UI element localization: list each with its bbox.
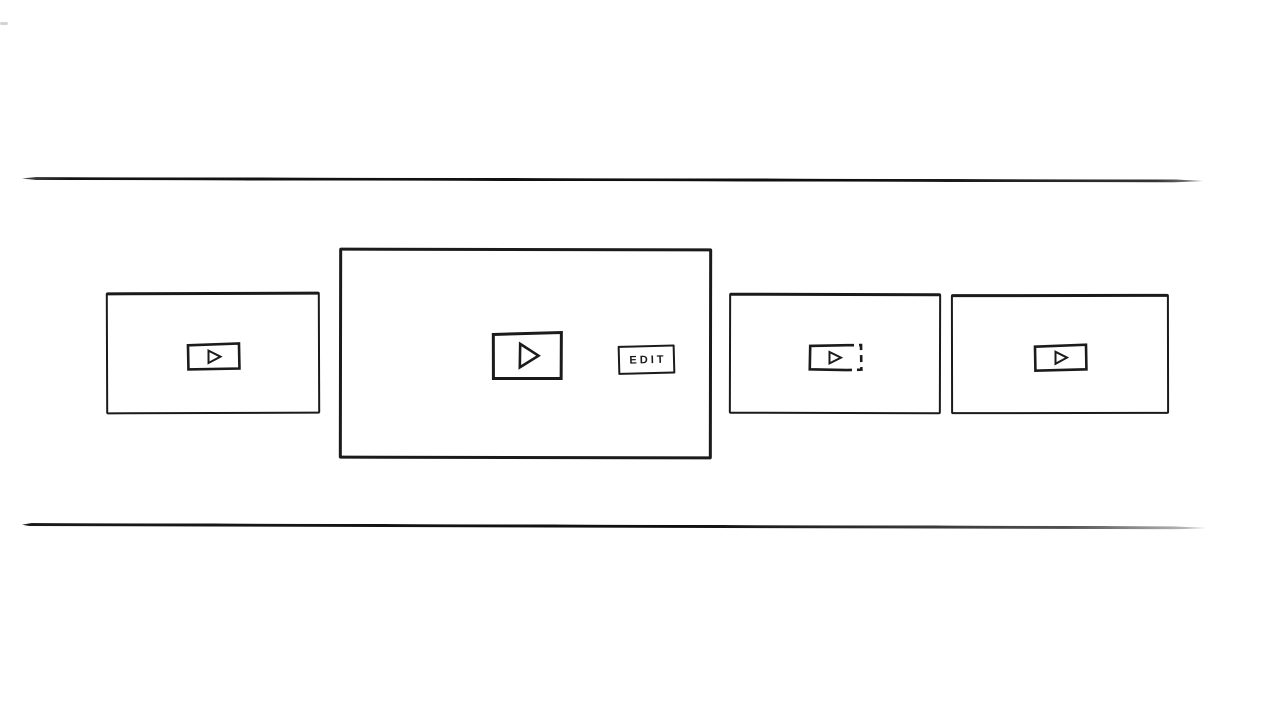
play-icon-dashed[interactable] <box>806 341 863 372</box>
video-thumbnail-selected[interactable]: EDIT <box>339 248 712 460</box>
whiteboard-sketch: EDIT <box>0 0 1280 720</box>
play-triangle <box>1055 352 1067 364</box>
stray-ink-mark <box>0 22 8 25</box>
timeline-bottom-line <box>22 523 1206 530</box>
play-icon[interactable] <box>490 328 565 382</box>
play-icon-frame-dashed-part <box>846 345 860 370</box>
play-icon[interactable] <box>184 341 241 372</box>
video-thumbnail-3[interactable] <box>729 293 941 415</box>
edit-button[interactable]: EDIT <box>618 344 676 374</box>
play-triangle <box>520 344 539 368</box>
video-thumbnail-4[interactable] <box>951 294 1169 414</box>
play-icon-frame <box>1034 345 1085 371</box>
play-triangle <box>829 351 841 362</box>
video-thumbnail-1[interactable] <box>106 292 320 415</box>
play-icon-frame <box>493 331 562 379</box>
play-triangle <box>208 351 220 363</box>
play-icon[interactable] <box>1031 342 1088 373</box>
play-icon-frame <box>187 344 238 370</box>
timeline-top-line <box>22 177 1203 182</box>
